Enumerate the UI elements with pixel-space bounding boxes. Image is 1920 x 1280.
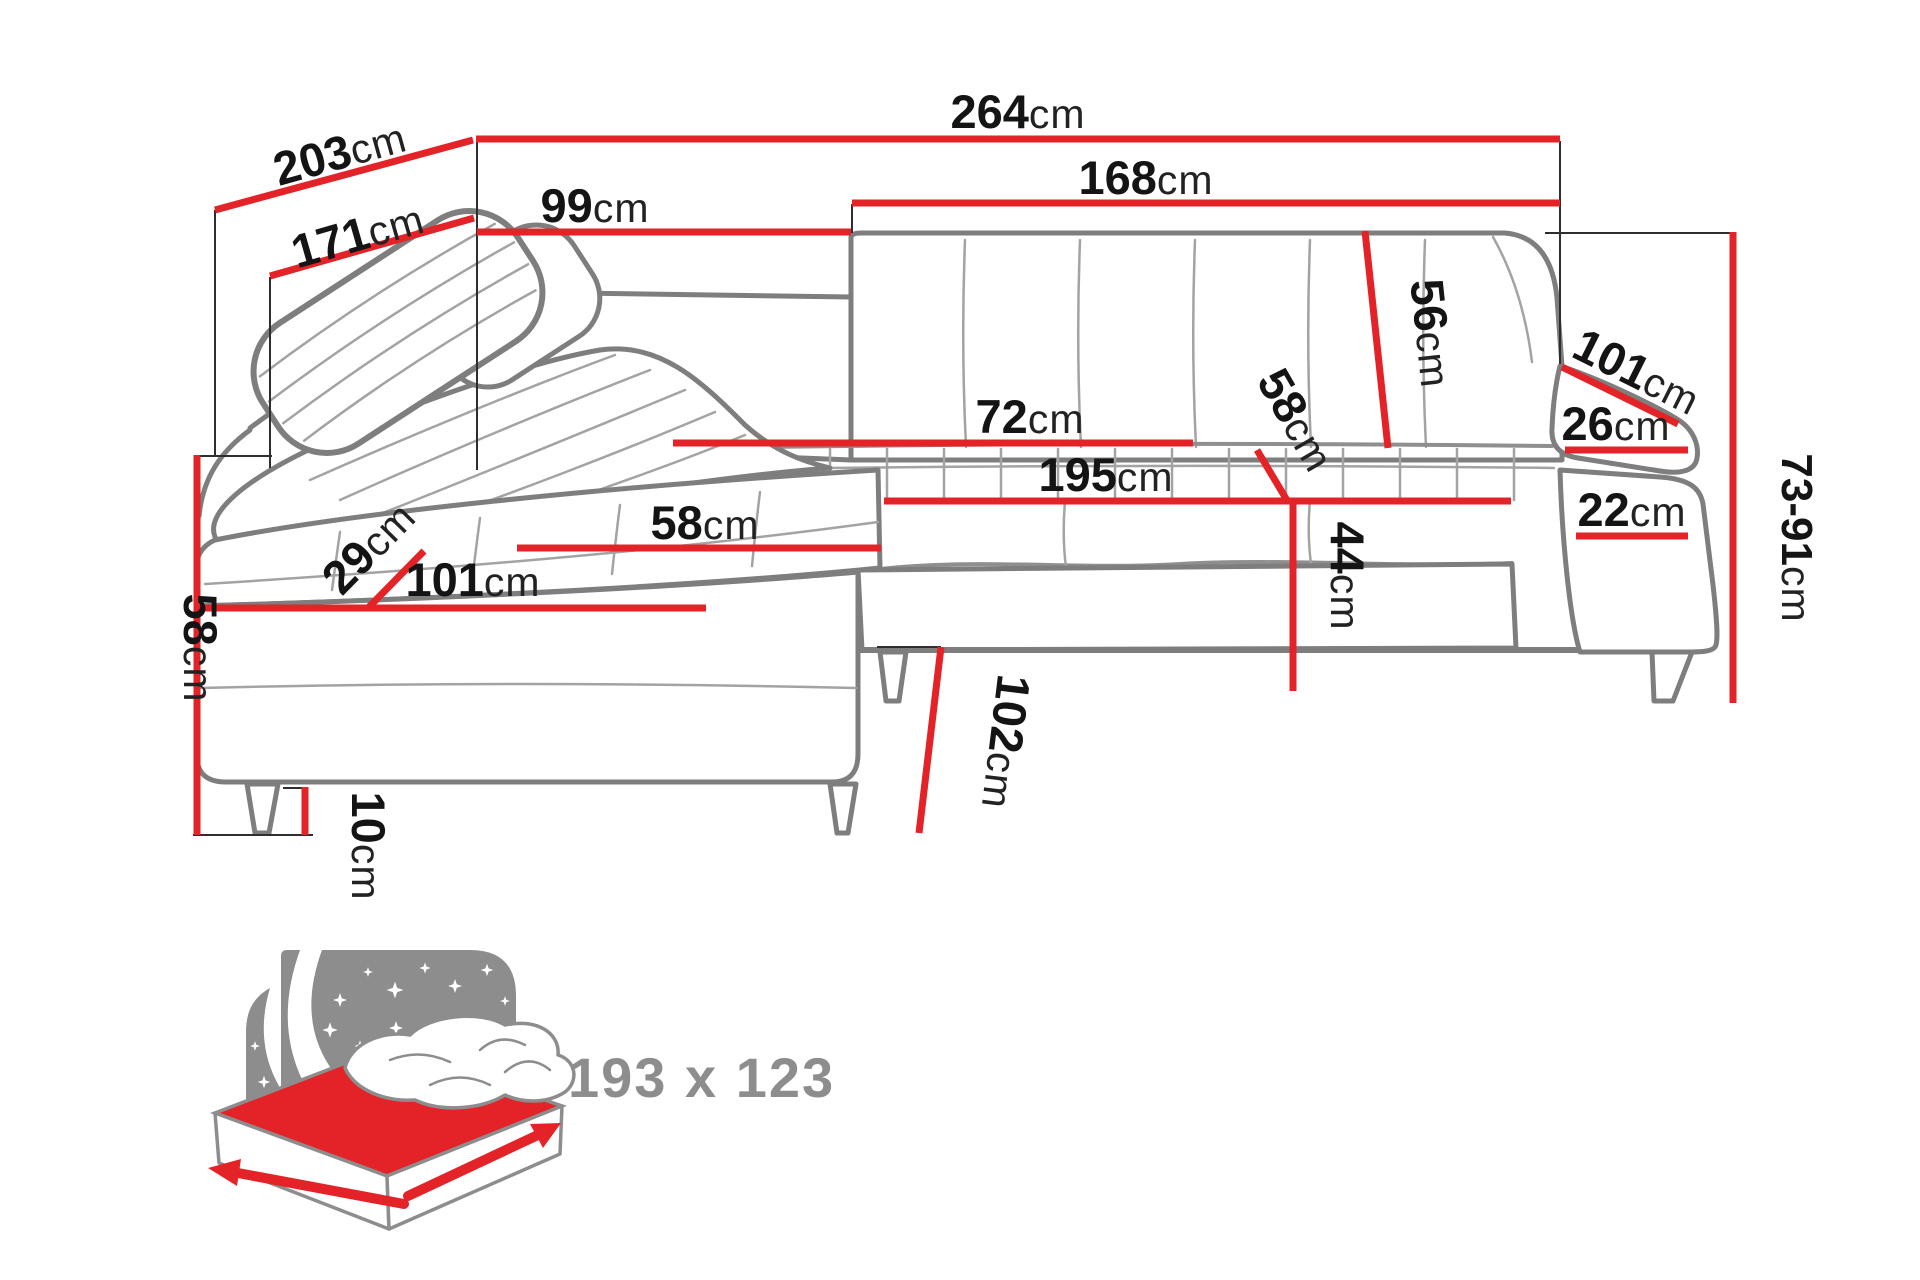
dim-line-102 [919, 647, 941, 833]
label-10: 10cm [342, 792, 395, 901]
label-72: 72cm [976, 390, 1085, 443]
sofa-illustration [197, 189, 1717, 833]
label-99: 99cm [541, 179, 650, 232]
sofa-leg [830, 784, 856, 833]
label-101-chaise: 101cm [405, 553, 540, 606]
sofa-leg [247, 784, 278, 833]
sleeping-area-icon: 193 x 123 [208, 950, 835, 1229]
sleeping-area-label: 193 x 123 [568, 1046, 835, 1109]
sofa-leg [1652, 652, 1692, 701]
label-44: 44cm [1321, 522, 1374, 631]
sofa-dimension-diagram: 203cm 171cm 264cm 99cm 168cm 101cm 26cm … [0, 0, 1920, 1280]
sofa-leg [880, 652, 906, 701]
label-22: 22cm [1578, 483, 1687, 536]
label-264: 264cm [950, 85, 1085, 138]
label-58-chaise: 58cm [651, 496, 760, 549]
label-58-height: 58cm [174, 594, 227, 703]
sofa-front-rail [858, 564, 1516, 650]
label-26: 26cm [1562, 397, 1671, 450]
label-102: 102cm [972, 672, 1041, 813]
label-168: 168cm [1078, 151, 1213, 204]
diagram-canvas: 203cm 171cm 264cm 99cm 168cm 101cm 26cm … [0, 0, 1920, 1280]
label-195: 195cm [1038, 448, 1173, 501]
label-73-91: 73-91cm [1772, 453, 1821, 622]
label-203: 203cm [267, 109, 411, 196]
